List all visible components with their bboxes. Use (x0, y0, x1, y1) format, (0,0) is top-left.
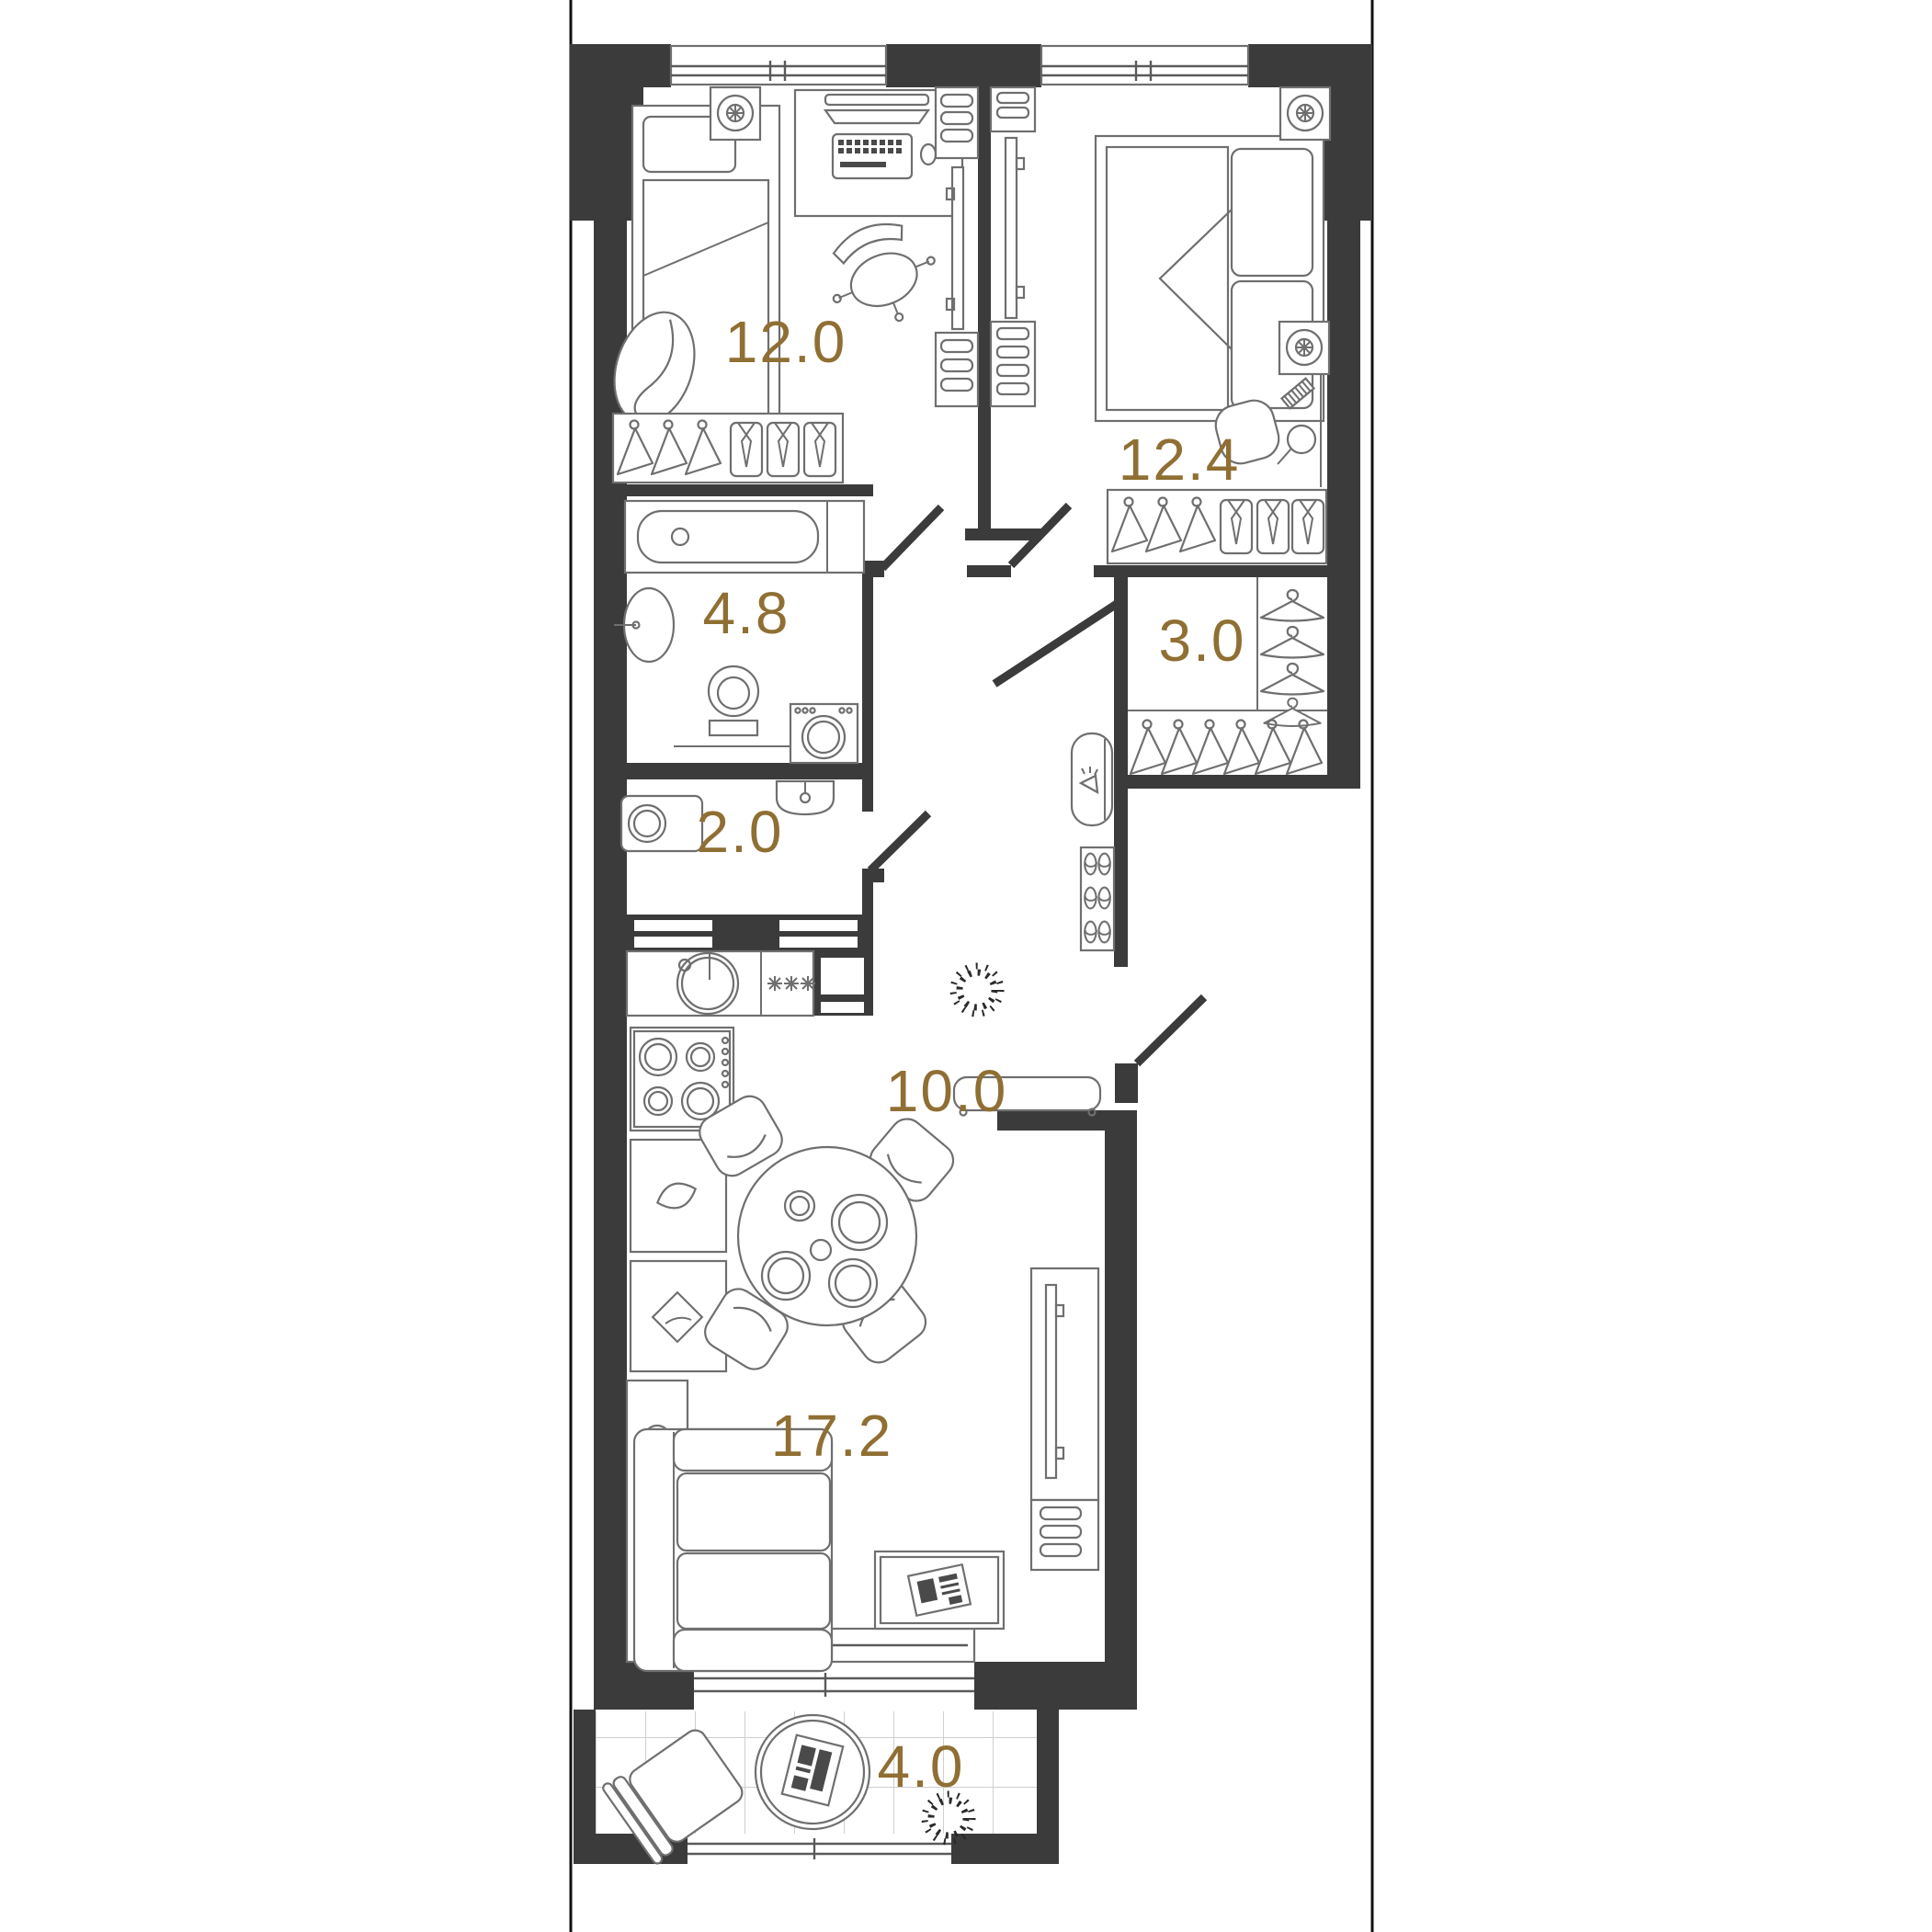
toilet (674, 666, 790, 746)
vent-bedroom-2-side (1279, 322, 1329, 374)
door-entry (1137, 997, 1204, 1063)
room-kitchen-living: 17.2 (627, 920, 1098, 1671)
wall-right-outer (1327, 87, 1360, 789)
double-bed (1096, 136, 1324, 421)
bathtub (625, 501, 864, 573)
area-label-bedroom-1: 12.0 (725, 309, 847, 375)
door-closet (994, 604, 1117, 684)
dining-table (738, 1147, 916, 1325)
mouse-icon (921, 144, 936, 165)
wall-bedroom-divider (978, 87, 991, 528)
wall-hall-closet (1114, 577, 1128, 967)
washing-machine-bath (790, 704, 858, 763)
room-bedroom-1: 12.0 (601, 87, 978, 483)
area-label-bedroom-2: 12.4 (1119, 426, 1241, 493)
wc-washer (621, 796, 702, 851)
area-label-hallway: 10.0 (886, 1058, 1008, 1124)
room-closet: 3.0 (1128, 577, 1327, 774)
area-label-closet: 3.0 (1159, 608, 1246, 674)
wardrobe-bedroom-2 (1108, 490, 1326, 563)
room-wc: 2.0 (621, 781, 834, 865)
area-label-kitchen-living: 17.2 (771, 1403, 893, 1469)
wardrobe-bedroom-1 (613, 414, 843, 483)
wall-left-outer (594, 87, 627, 1662)
dining-set (694, 1090, 960, 1375)
vent-bedroom-1 (710, 87, 760, 140)
area-label-bathroom: 4.8 (703, 580, 790, 646)
floor-plan-page: 12.0 (0, 0, 1932, 1932)
door-bathroom (882, 507, 941, 568)
window-bedroom-1 (671, 44, 886, 87)
wall-closet-top (1094, 565, 1327, 577)
window-balcony (688, 1834, 951, 1864)
room-bathroom: 4.8 (614, 501, 864, 763)
shelf-tv-column-bedroom-1 (936, 87, 978, 406)
floor-plan-canvas: 12.0 (0, 0, 1932, 1932)
tv-panel-living (1046, 1285, 1056, 1478)
coffee-table (875, 1551, 1004, 1629)
wall-bath-wc (594, 763, 873, 779)
wall-closet-bottom (1114, 775, 1360, 789)
shoe-rack (1081, 847, 1114, 950)
kitchen-top-counter (627, 951, 815, 1016)
room-bedroom-2: 12.4 (991, 87, 1330, 563)
door-wc (870, 813, 928, 870)
hall-plant (953, 966, 1001, 1014)
room-hallway: 10.0 (886, 733, 1114, 1124)
area-label-balcony: 4.0 (878, 1733, 965, 1800)
entry-door-stub (1115, 1063, 1138, 1103)
tv-stand-living (1031, 1268, 1098, 1570)
balcony-table (756, 1715, 869, 1829)
tv-panel-bedroom-2 (1006, 138, 1017, 318)
wall-living-right (1105, 1131, 1137, 1662)
wc-sink (777, 781, 834, 814)
pillow (1232, 149, 1313, 276)
window-bedroom-2 (1041, 44, 1248, 87)
wall-bench (997, 1110, 1137, 1131)
shelf-tv-column-bedroom-2 (991, 87, 1035, 406)
area-label-wc: 2.0 (697, 799, 784, 865)
vent-bedroom-2-top (1280, 87, 1330, 140)
wall-bathroom-top (594, 484, 873, 496)
hall-mirror (1072, 733, 1112, 825)
